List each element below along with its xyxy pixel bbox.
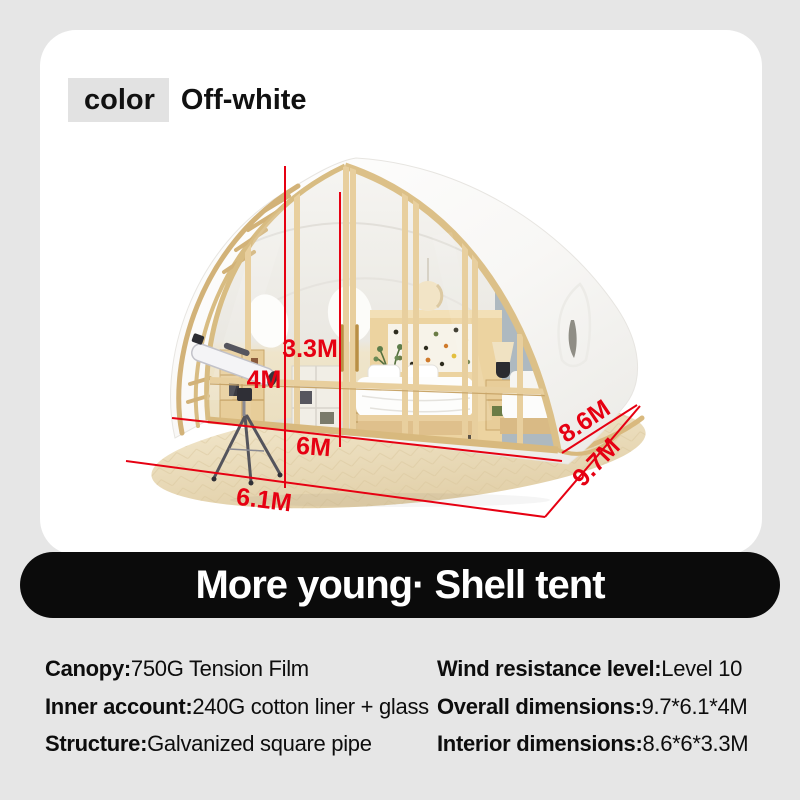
product-title-banner: More young· Shell tent xyxy=(20,552,780,618)
spec-canopy: Canopy:750G Tension Film xyxy=(45,656,309,682)
product-title: More young· Shell tent xyxy=(195,563,604,608)
spec-value: Level 10 xyxy=(661,656,742,681)
spec-wind-resistance: Wind resistance level:Level 10 xyxy=(437,656,742,682)
tent-illustration: 4M 3.3M 6M 6.1M 8.6M 9.7M xyxy=(40,128,760,540)
spec-value: 240G cotton liner + glass xyxy=(192,694,428,719)
spec-label: Canopy: xyxy=(45,656,131,681)
spec-interior-dimensions: Interior dimensions:8.6*6*3.3M xyxy=(437,731,748,757)
spec-label: Inner account: xyxy=(45,694,192,719)
spec-value: Galvanized square pipe xyxy=(147,731,372,756)
spec-structure: Structure:Galvanized square pipe xyxy=(45,731,372,757)
dimension-label-interior-height: 3.3M xyxy=(282,335,338,363)
color-value: Off-white xyxy=(169,78,325,122)
dimension-label-front-width: 6M xyxy=(295,432,332,462)
dimension-label-base-width: 6.1M xyxy=(235,483,294,518)
spec-label: Structure: xyxy=(45,731,147,756)
spec-label: Overall dimensions: xyxy=(437,694,642,719)
color-label: color xyxy=(68,78,169,122)
spec-inner-account: Inner account:240G cotton liner + glass xyxy=(45,694,429,720)
spec-label: Interior dimensions: xyxy=(437,731,642,756)
color-selector: color Off-white xyxy=(68,78,325,122)
spec-value: 750G Tension Film xyxy=(131,656,309,681)
spec-overall-dimensions: Overall dimensions:9.7*6.1*4M xyxy=(437,694,747,720)
spec-label: Wind resistance level: xyxy=(437,656,661,681)
product-image: color Off-white xyxy=(0,0,800,800)
spec-value: 9.7*6.1*4M xyxy=(642,694,748,719)
dimension-label-overall-height: 4M xyxy=(247,366,282,394)
spec-value: 8.6*6*3.3M xyxy=(642,731,748,756)
